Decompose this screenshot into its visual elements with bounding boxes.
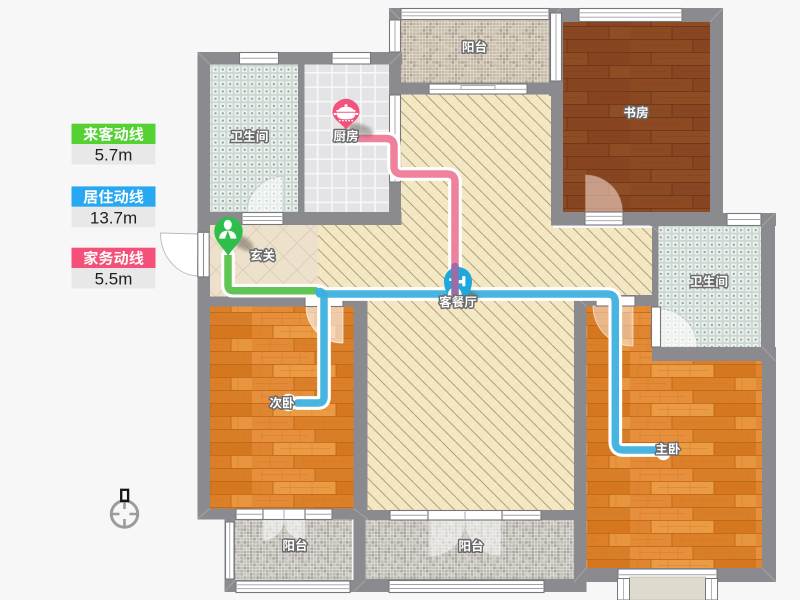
svg-text:5.7m: 5.7m (95, 146, 133, 165)
svg-text:13.7m: 13.7m (90, 208, 137, 227)
svg-text:5.5m: 5.5m (95, 270, 133, 289)
